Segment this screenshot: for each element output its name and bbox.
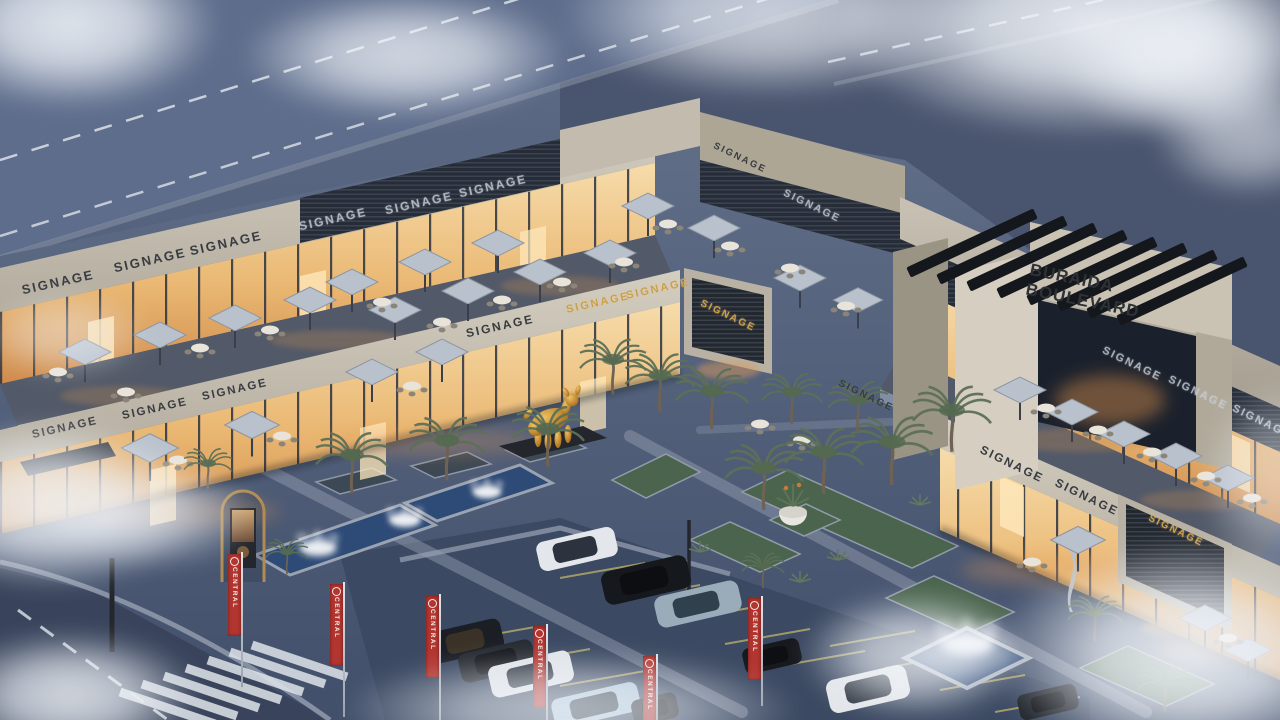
flag-pole [241, 552, 243, 687]
flag-banner: CENTRAL [748, 598, 761, 680]
flag-label: CENTRAL [536, 639, 543, 681]
flag-logo-icon [230, 557, 239, 566]
rendering-canvas: SIGNAGE SIGNAGE SIGNAGE SIGNAGE SIGNAGE … [0, 0, 1280, 720]
flag-logo-icon [750, 601, 759, 610]
flag-pole [656, 654, 658, 720]
flag-pole [761, 596, 763, 706]
flag-pole [546, 624, 548, 720]
flag-logo-icon [428, 599, 437, 608]
flag-banner: CENTRAL [330, 584, 343, 666]
flag-banner: CENTRAL [643, 656, 656, 720]
flag-label: CENTRAL [231, 567, 238, 609]
flag-banner: CENTRAL [228, 554, 241, 636]
flag-label: CENTRAL [333, 597, 340, 639]
flag-label: CENTRAL [751, 611, 758, 653]
flag-banner: CENTRAL [533, 626, 546, 708]
flag-banner: CENTRAL [426, 596, 439, 678]
flag-logo-icon [535, 629, 544, 638]
flag-logo-icon [332, 587, 341, 596]
scene-artwork [0, 0, 1280, 720]
flag-label: CENTRAL [429, 609, 436, 651]
flag-pole [439, 594, 441, 720]
flag-logo-icon [645, 659, 654, 668]
flag-pole [343, 582, 345, 717]
flag-label: CENTRAL [646, 669, 653, 711]
